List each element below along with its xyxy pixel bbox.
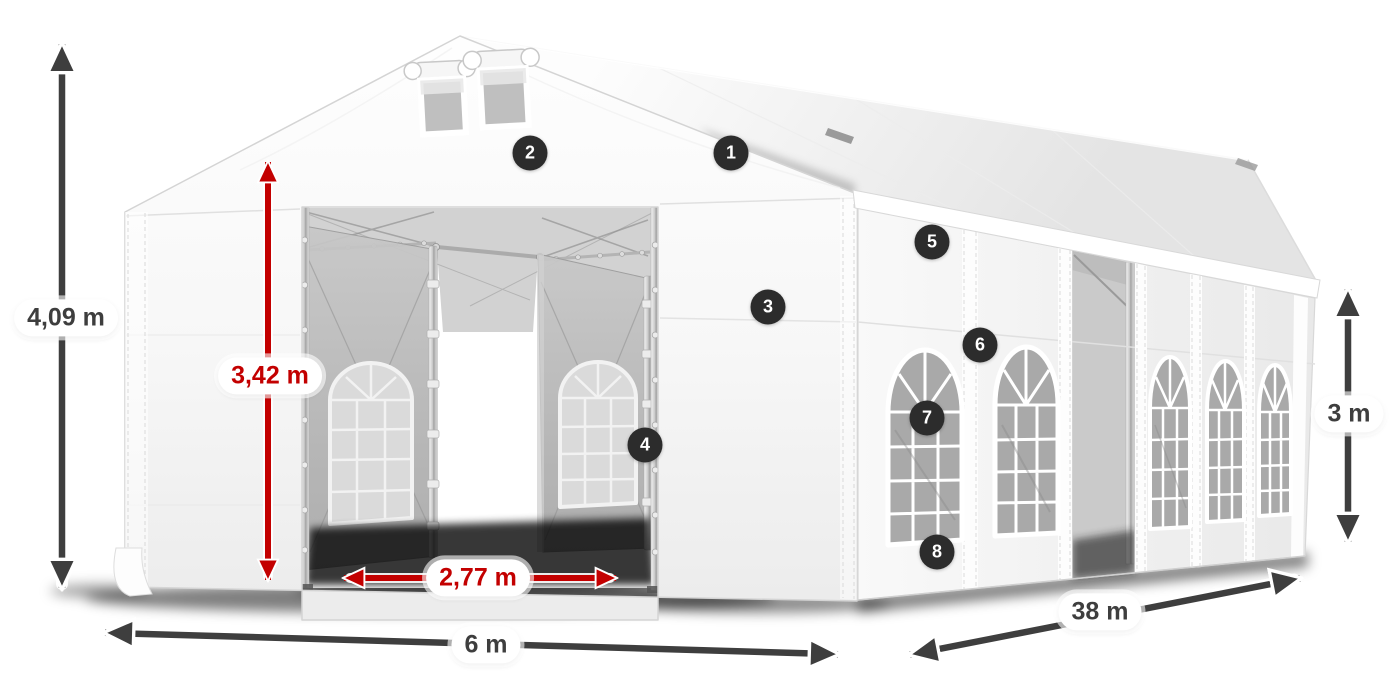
label-front-width: 6 m (451, 626, 520, 663)
tent-dimension-diagram: 4,09 m 3,42 m 2,77 m 6 m 38 m 3 m 1 2 3 … (0, 0, 1400, 700)
callout-badge-7[interactable]: 7 (910, 401, 945, 436)
side-doorway-interior (1072, 250, 1135, 579)
callout-badge-6[interactable]: 6 (963, 328, 998, 363)
vent-window (420, 78, 466, 134)
callout-badge-5[interactable]: 5 (915, 225, 950, 260)
left-door-panel (303, 224, 439, 570)
door-window-print (560, 362, 636, 507)
callout-badge-1[interactable]: 1 (714, 136, 749, 171)
label-entrance-height: 3,42 m (218, 357, 322, 394)
arched-window (1150, 357, 1190, 529)
arched-window (995, 347, 1058, 536)
door-window-print (330, 363, 412, 524)
tent-illustration (0, 0, 1400, 700)
label-side-length: 38 m (1059, 593, 1142, 630)
arched-window (1207, 361, 1244, 522)
vent-window (480, 68, 529, 127)
label-total-height: 4,09 m (14, 299, 118, 336)
label-wall-height: 3 m (1314, 395, 1383, 432)
callout-badge-2[interactable]: 2 (513, 136, 548, 171)
arched-window (888, 350, 962, 545)
entrance-interior (295, 206, 665, 593)
callout-badge-4[interactable]: 4 (628, 428, 663, 463)
label-entrance-width: 2,77 m (426, 559, 530, 596)
callout-badge-8[interactable]: 8 (920, 535, 955, 570)
arched-window (1259, 365, 1291, 516)
right-door-panel (537, 252, 654, 552)
callout-badge-3[interactable]: 3 (751, 290, 786, 325)
